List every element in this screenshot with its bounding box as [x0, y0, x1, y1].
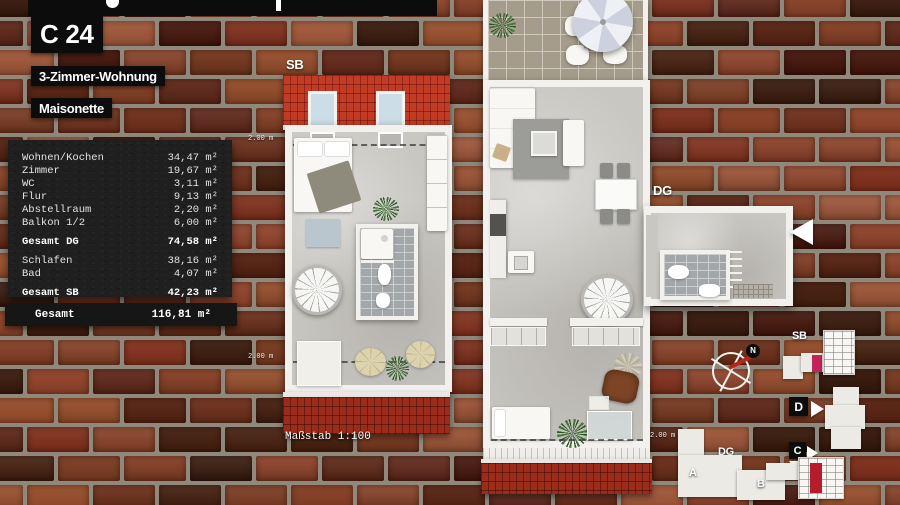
plant — [373, 197, 399, 221]
dg-plan-label: DG — [653, 183, 672, 198]
table-row: Balkon 1/26,00 m² — [22, 217, 218, 230]
shower — [361, 229, 393, 259]
kitchen-island — [508, 251, 534, 273]
bed — [294, 138, 352, 212]
stove — [490, 214, 506, 236]
pillow — [297, 141, 323, 157]
toilet — [668, 265, 689, 279]
site-sb-label: SB — [792, 330, 807, 342]
toilet — [376, 293, 390, 308]
grand-total-label: Gesamt — [35, 309, 75, 321]
terrace-chair — [566, 45, 589, 65]
unit-id-text: C 24 — [40, 19, 94, 50]
grand-total-value: 116,81 m² — [152, 309, 211, 321]
sb-plan-label: SB — [286, 57, 303, 72]
bathroom — [356, 224, 418, 320]
round-mat — [406, 341, 435, 368]
site-a-label: A — [689, 467, 697, 479]
dg-roof-bottom — [481, 459, 652, 494]
subtotal-dg-row: Gesamt DG74,58 m² — [22, 236, 218, 249]
cropped-text-fragment — [106, 0, 119, 8]
interior-wall — [490, 318, 547, 326]
apartment-type-badge: 3-Zimmer-Wohnung — [31, 66, 165, 86]
bed — [492, 407, 550, 439]
dining-chair — [617, 163, 630, 178]
interior-wall — [570, 318, 643, 326]
height-marker: 2.00 m — [248, 353, 273, 361]
dresser — [297, 341, 341, 386]
scale-label: Maßstab 1:100 — [285, 431, 371, 443]
side-table — [589, 396, 609, 410]
table-row: Zimmer19,67 m² — [22, 165, 218, 178]
apartment-style-badge: Maisonette — [31, 98, 112, 118]
spiral-staircase — [581, 275, 633, 324]
dining-chair — [600, 209, 613, 224]
highlighted-unit-sb — [812, 355, 822, 372]
apartment-type-text: 3-Zimmer-Wohnung — [39, 69, 157, 84]
site-mini-floorplan — [823, 330, 855, 375]
wall-opening-patch — [646, 215, 658, 297]
wardrobe-closet — [490, 327, 546, 346]
table-row: Flur9,13 m² — [22, 191, 218, 204]
skylight-window — [376, 91, 405, 128]
grand-total-bar: Gesamt 116,81 m² — [5, 303, 237, 326]
subtotal-sb-row: Gesamt SB42,23 m² — [22, 287, 218, 300]
spiral-staircase — [292, 265, 342, 315]
site-d-badge: D — [789, 397, 808, 416]
height-marker: 2.00 m — [650, 432, 675, 440]
rug — [306, 219, 340, 247]
glass-desk — [587, 411, 632, 440]
entrance-arrow-icon — [790, 219, 813, 245]
kitchen-counter — [490, 200, 506, 278]
north-badge: N — [746, 344, 760, 358]
table-row: Bad4,07 m² — [22, 268, 218, 281]
dining-table — [595, 179, 637, 210]
doormat — [733, 284, 773, 298]
table-row: Abstellraum2,20 m² — [22, 204, 218, 217]
table-row: Schlafen38,16 m² — [22, 255, 218, 268]
site-building-c — [766, 463, 798, 480]
dg-headroom-line — [491, 439, 643, 441]
sink — [378, 264, 391, 285]
balcony-railing — [483, 448, 650, 459]
brochure-page: C 24 3-Zimmer-Wohnung Maisonette Wohnen/… — [0, 0, 900, 505]
table-row: WC3,11 m² — [22, 178, 218, 191]
unit-id-badge: C 24 — [31, 15, 103, 53]
wardrobe-closet — [572, 327, 640, 346]
plant — [489, 13, 516, 38]
plant — [557, 419, 588, 448]
dining-chair — [600, 163, 613, 178]
wc-room — [660, 250, 730, 300]
shelf-unit — [427, 135, 447, 231]
cropped-text-fragment — [276, 0, 281, 11]
site-b-label: B — [757, 478, 765, 490]
sofa-chaise — [563, 120, 584, 166]
coffee-table — [531, 131, 557, 156]
pillow — [494, 409, 506, 437]
highlighted-unit-c24 — [810, 463, 822, 493]
sink — [699, 284, 720, 297]
arrow-right-icon — [811, 401, 824, 417]
round-mat — [355, 348, 386, 376]
apartment-style-text: Maisonette — [39, 101, 104, 116]
cropped-title-bar — [28, 0, 437, 16]
plant — [386, 356, 409, 381]
sb-roof-bottom — [283, 392, 450, 434]
dining-chair — [617, 209, 630, 224]
skylight-window — [308, 91, 337, 128]
area-table-panel: Wohnen/Kochen34,47 m² Zimmer19,67 m² WC3… — [8, 140, 232, 297]
kitchen-sink — [514, 256, 528, 270]
site-building-sb — [783, 356, 803, 379]
pillow — [324, 141, 350, 157]
shower-drain — [381, 235, 388, 242]
bathroom-partition-wall — [361, 260, 394, 263]
table-row: Wohnen/Kochen34,47 m² — [22, 152, 218, 165]
parasol-pole — [600, 19, 606, 25]
height-marker: 2.00 m — [248, 135, 273, 143]
